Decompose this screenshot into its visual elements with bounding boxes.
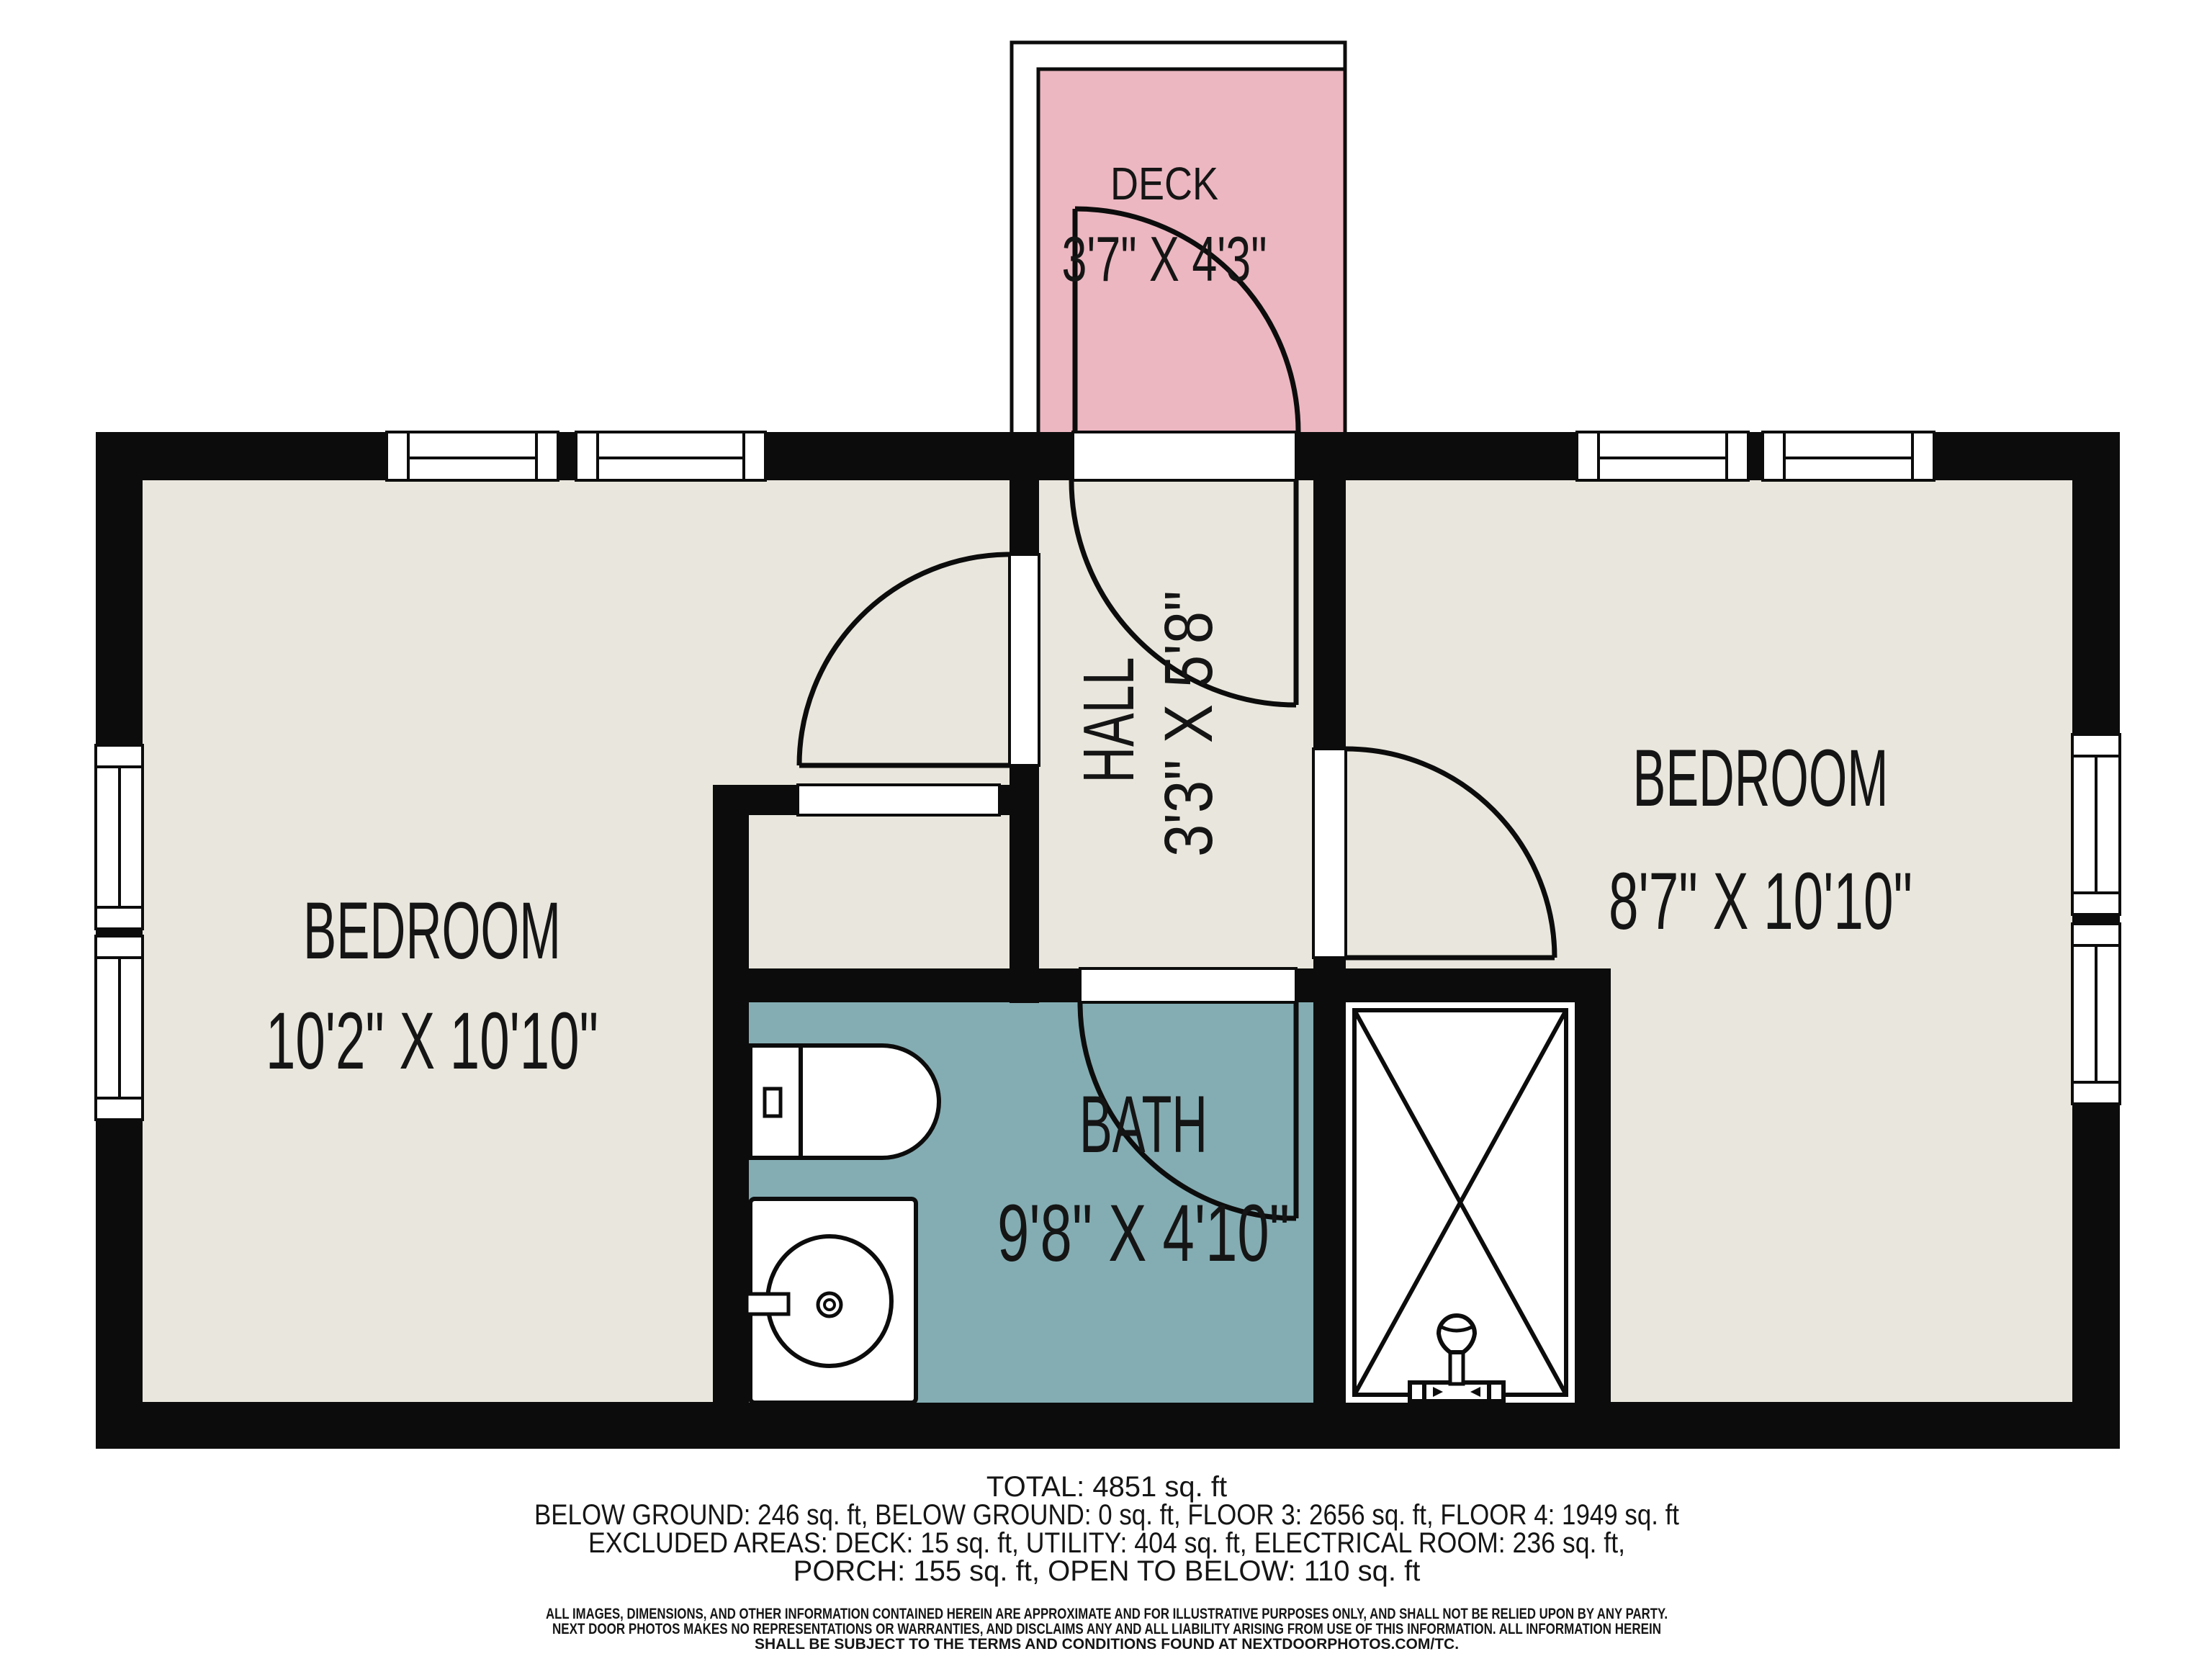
disclaimer-line-2: NEXT DOOR PHOTOS MAKES NO REPRESENTATION… — [552, 1621, 1661, 1637]
bath-door-opening — [1080, 968, 1296, 1002]
bedroom-left-label: BEDROOM — [303, 886, 561, 976]
disclaimer-line-3: SHALL BE SUBJECT TO THE TERMS AND CONDIT… — [755, 1636, 1459, 1653]
toilet-bowl — [801, 1046, 939, 1158]
bedroom-left-dims: 10'2" X 10'10" — [266, 996, 598, 1086]
summary-excluded-2: PORCH: 155 sq. ft, OPEN TO BELOW: 110 sq… — [793, 1555, 1421, 1587]
valve-head — [1439, 1316, 1475, 1352]
deck-door-opening — [1073, 432, 1296, 480]
sink-icon — [747, 1199, 916, 1403]
window-right-wall-2 — [2072, 924, 2120, 1104]
summary-floors: BELOW GROUND: 246 sq. ft, BELOW GROUND: … — [534, 1499, 1679, 1531]
window-right-wall-1 — [2072, 734, 2120, 914]
shower-top-wall — [1346, 968, 1611, 1002]
window-left-wall-2 — [96, 936, 143, 1120]
bedroom-right-label: BEDROOM — [1633, 733, 1889, 823]
window-left-wall-1 — [96, 745, 143, 929]
window-top-left-1 — [387, 432, 558, 480]
bath-dims: 9'8" X 4'10" — [997, 1188, 1290, 1278]
deck-label: DECK — [1110, 158, 1218, 210]
sink-drain-inner — [824, 1300, 835, 1310]
bath-label: BATH — [1079, 1079, 1208, 1169]
deck-dims: 3'7" X 4'3" — [1062, 223, 1267, 295]
closet-opening — [798, 785, 999, 815]
summary-excluded-1: EXCLUDED AREAS: DECK: 15 sq. ft, UTILITY… — [588, 1527, 1625, 1559]
toilet-flush — [765, 1089, 781, 1116]
bedroom-left-door-opening — [1010, 554, 1039, 765]
hall-dims: 3'3" X 5'8" — [1151, 590, 1227, 857]
valve-stem — [1450, 1352, 1463, 1384]
toilet-icon — [750, 1046, 939, 1158]
window-top-left-2 — [576, 432, 765, 480]
window-top-right-2 — [1763, 432, 1934, 480]
window-top-right-1 — [1577, 432, 1748, 480]
bedroom-right-door-opening — [1313, 749, 1346, 958]
floor-plan-svg: DECK 3'7" X 4'3" HALL 3'3" X 5'8" BEDROO… — [0, 0, 2212, 1659]
disclaimer-line-1: ALL IMAGES, DIMENSIONS, AND OTHER INFORM… — [546, 1606, 1668, 1622]
shower-right-wall — [1575, 968, 1611, 1403]
summary-total: TOTAL: 4851 sq. ft — [986, 1471, 1227, 1503]
hall-label: HALL — [1069, 657, 1149, 783]
floor-plan-page: DECK 3'7" X 4'3" HALL 3'3" X 5'8" BEDROO… — [0, 0, 2212, 1659]
sink-handle — [747, 1294, 788, 1314]
bedroom-right-dims: 8'7" X 10'10" — [1609, 856, 1912, 946]
closet-left-wall — [713, 785, 749, 1403]
